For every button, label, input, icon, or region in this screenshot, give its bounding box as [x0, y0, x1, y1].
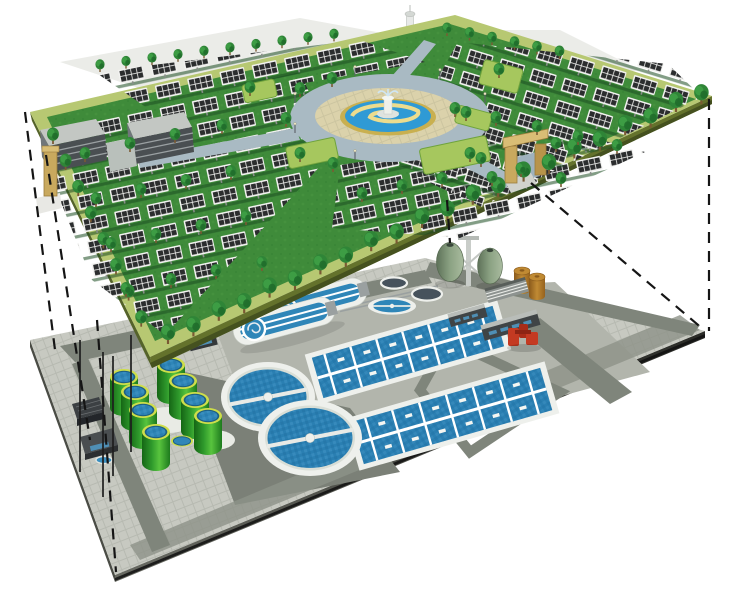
covered-tank-b [412, 287, 442, 300]
egg-digester-1 [435, 243, 465, 289]
solar-park-over-treatment-plant-illustration [0, 0, 740, 589]
covered-tank-a [381, 277, 407, 288]
secondary-clarifier-2 [258, 400, 362, 476]
egg-digester-2 [476, 248, 504, 290]
inlet-pool [96, 456, 112, 463]
sludge-pit [171, 435, 193, 446]
brown-storage-tank-2 [529, 273, 545, 300]
small-clarifier [368, 297, 416, 314]
illustration-stage [0, 0, 740, 589]
egg-digester-group [435, 236, 504, 290]
